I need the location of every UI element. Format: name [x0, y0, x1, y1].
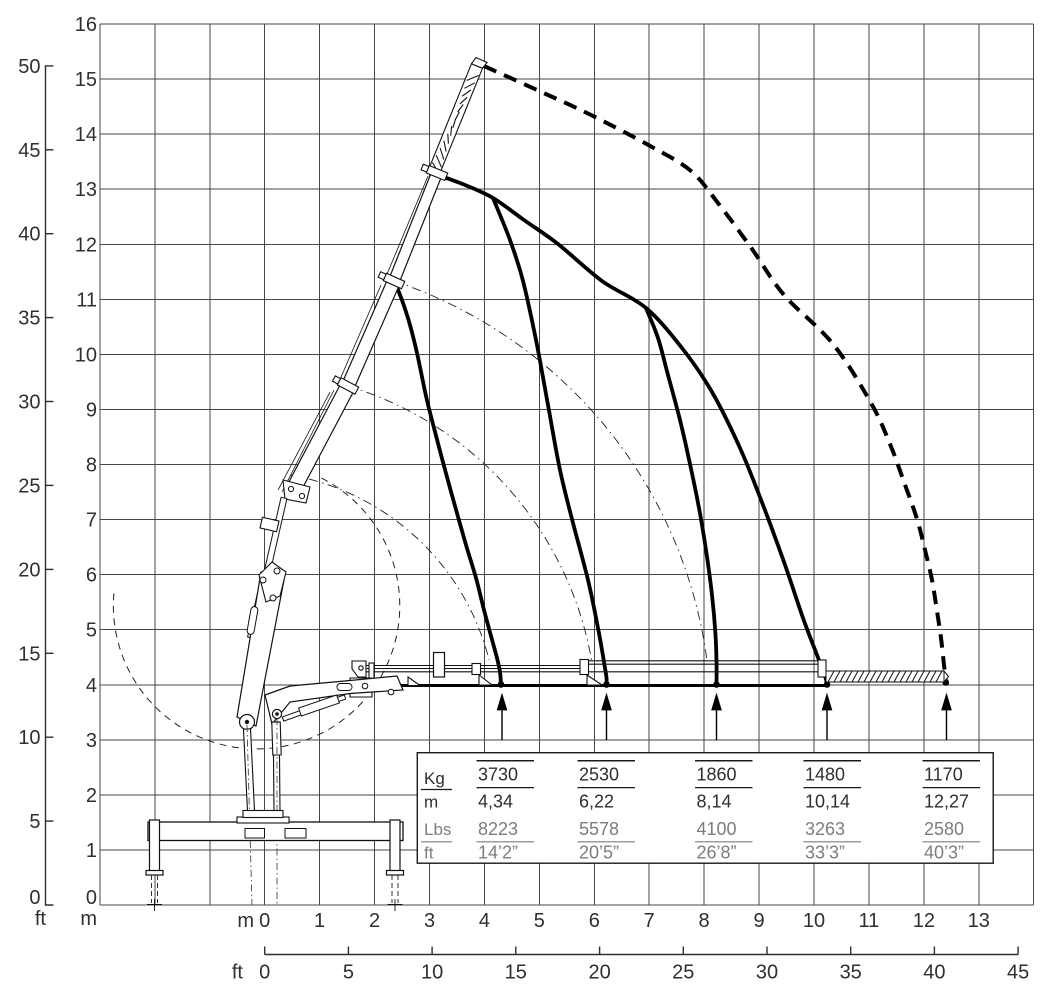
svg-text:25: 25	[18, 475, 40, 497]
svg-text:9: 9	[86, 400, 97, 422]
svg-text:33’3”: 33’3”	[805, 843, 845, 863]
svg-text:4,34: 4,34	[478, 792, 513, 812]
svg-text:20’5”: 20’5”	[579, 843, 619, 863]
svg-text:11: 11	[76, 289, 97, 311]
svg-text:3: 3	[424, 910, 435, 932]
svg-text:30: 30	[18, 392, 40, 414]
svg-text:40: 40	[18, 224, 40, 246]
svg-text:2: 2	[369, 910, 380, 932]
svg-text:15: 15	[505, 962, 527, 984]
svg-text:1170: 1170	[924, 765, 963, 785]
svg-text:1: 1	[86, 840, 97, 862]
svg-text:6: 6	[589, 910, 600, 932]
svg-text:1480: 1480	[805, 765, 845, 785]
svg-text:45: 45	[18, 140, 40, 162]
svg-text:8,14: 8,14	[697, 792, 732, 812]
svg-text:35: 35	[840, 962, 862, 984]
svg-text:12: 12	[75, 234, 97, 256]
svg-text:10: 10	[75, 344, 97, 366]
svg-text:3: 3	[86, 730, 97, 752]
svg-text:2: 2	[86, 785, 97, 807]
svg-text:20: 20	[18, 559, 40, 581]
svg-text:10: 10	[803, 910, 825, 932]
svg-text:6,22: 6,22	[579, 792, 614, 812]
svg-text:m: m	[424, 793, 438, 812]
svg-text:40’3”: 40’3”	[924, 843, 964, 863]
svg-text:1860: 1860	[697, 765, 737, 785]
svg-text:Kg: Kg	[424, 769, 445, 788]
svg-text:Lbs: Lbs	[424, 820, 451, 839]
svg-text:ft: ft	[424, 844, 434, 863]
svg-text:m: m	[237, 910, 254, 932]
svg-text:0: 0	[259, 962, 270, 984]
svg-text:10,14: 10,14	[805, 792, 850, 812]
svg-text:35: 35	[18, 308, 40, 330]
svg-text:13: 13	[968, 910, 990, 932]
svg-text:13: 13	[75, 179, 97, 201]
svg-text:12: 12	[913, 910, 935, 932]
svg-text:2530: 2530	[579, 765, 619, 785]
svg-text:0: 0	[29, 887, 40, 909]
svg-text:2580: 2580	[924, 819, 964, 839]
svg-text:26’8”: 26’8”	[697, 843, 737, 863]
svg-text:7: 7	[86, 510, 97, 532]
svg-text:12,27: 12,27	[924, 792, 969, 812]
svg-text:0: 0	[259, 910, 270, 932]
svg-text:40: 40	[923, 962, 945, 984]
svg-text:15: 15	[75, 69, 97, 91]
svg-text:8: 8	[86, 455, 97, 477]
svg-text:6: 6	[86, 565, 97, 587]
svg-text:14’2”: 14’2”	[478, 843, 518, 863]
svg-text:1: 1	[314, 910, 325, 932]
svg-text:5: 5	[29, 811, 40, 833]
svg-text:50: 50	[18, 56, 40, 78]
svg-text:ft: ft	[232, 962, 244, 984]
svg-text:45: 45	[1007, 962, 1029, 984]
svg-text:8223: 8223	[478, 819, 518, 839]
svg-text:30: 30	[756, 962, 778, 984]
svg-text:3730: 3730	[478, 765, 518, 785]
svg-text:20: 20	[588, 962, 610, 984]
svg-text:10: 10	[18, 727, 40, 749]
svg-text:m: m	[80, 908, 97, 930]
svg-text:3263: 3263	[805, 819, 845, 839]
svg-text:4100: 4100	[697, 819, 737, 839]
svg-text:9: 9	[754, 910, 765, 932]
svg-text:7: 7	[644, 910, 655, 932]
svg-text:5: 5	[86, 620, 97, 642]
svg-text:4: 4	[479, 910, 490, 932]
svg-text:4: 4	[86, 675, 97, 697]
svg-text:ft: ft	[35, 908, 47, 930]
svg-text:16: 16	[75, 14, 97, 36]
svg-text:10: 10	[421, 962, 443, 984]
svg-text:8: 8	[699, 910, 710, 932]
svg-text:14: 14	[75, 124, 97, 146]
svg-text:15: 15	[18, 643, 40, 665]
svg-text:5: 5	[343, 962, 354, 984]
svg-text:5: 5	[534, 910, 545, 932]
svg-text:11: 11	[859, 910, 880, 932]
svg-text:25: 25	[672, 962, 694, 984]
svg-text:0: 0	[86, 887, 97, 909]
svg-text:5578: 5578	[579, 819, 619, 839]
